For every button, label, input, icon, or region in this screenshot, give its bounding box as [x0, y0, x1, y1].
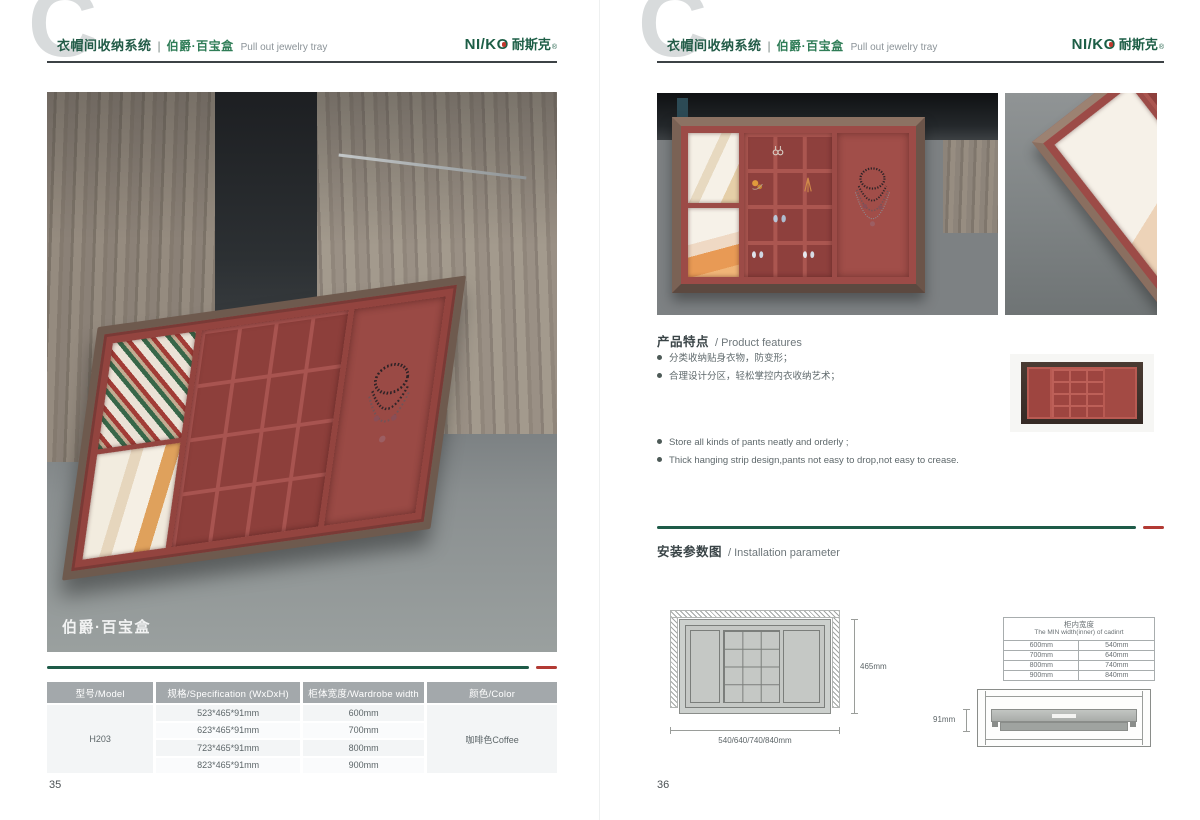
- cabinet-width-cell: 900mm: [1004, 670, 1079, 680]
- width-dimension-label: 540/640/740/840mm: [718, 736, 791, 745]
- inner-width-table-header: 柜内宽度 The MIN width(inner) of cadinrt: [1004, 618, 1155, 641]
- model-cell: H203: [47, 705, 153, 773]
- pendant-graphic: [748, 176, 766, 194]
- page-number: 35: [49, 779, 61, 791]
- right-compartment: [783, 630, 820, 703]
- left-compartment: [690, 630, 720, 703]
- product-name-cn: 伯爵·百宝盒: [167, 37, 234, 54]
- feature-text: 合理设计分区，轻松掌控内衣收纳艺术；: [669, 371, 840, 382]
- inner-width-cell: 540mm: [1079, 640, 1155, 650]
- registered-mark: ®: [1159, 44, 1164, 51]
- necklace-graphic: [841, 139, 904, 271]
- spec-cell: 623*465*91mm: [156, 723, 300, 739]
- feature-text: 分类收纳贴身衣物，防变形；: [669, 353, 793, 364]
- logo-cn-text: 耐斯克: [512, 34, 551, 53]
- cabinet-side-line: [985, 691, 986, 745]
- cabinet-side-line: [1142, 691, 1143, 745]
- feature-item: Store all kinds of pants neatly and orde…: [657, 437, 959, 448]
- table-title-en: The MIN width(inner) of cadinrt: [1004, 629, 1154, 637]
- tray-logo-label: [1052, 714, 1076, 718]
- mini-compartment-grid: [1052, 369, 1103, 417]
- dimension-tick: [839, 727, 840, 734]
- detail-photos: [657, 93, 1157, 315]
- product-name-en: Pull out jewelry tray: [241, 42, 328, 53]
- header-title: 衣帽间收纳系统 | 伯爵·百宝盒 Pull out jewelry tray: [667, 35, 937, 54]
- spec-table-header: 型号/Model: [47, 682, 153, 703]
- table-row: 600mm 540mm: [1004, 640, 1155, 650]
- scarf-cell: [1055, 93, 1157, 315]
- page-36: C 衣帽间收纳系统 | 伯爵·百宝盒 Pull out jewelry tray…: [600, 0, 1200, 820]
- width-cell: 800mm: [303, 740, 424, 756]
- spec-table-header: 柜体宽度/Wardrobe width: [303, 682, 424, 703]
- tray-profile: [991, 709, 1137, 722]
- feature-item: 合理设计分区，轻松掌控内衣收纳艺术；: [657, 371, 840, 382]
- installation-title-en: / Installation parameter: [728, 547, 840, 559]
- section-divider: [47, 666, 557, 669]
- inner-width-cell: 840mm: [1079, 670, 1155, 680]
- installation-title-cn: 安装参数图: [657, 541, 722, 560]
- tray-closeup-photo: [657, 93, 998, 315]
- spec-cell: 823*465*91mm: [156, 758, 300, 774]
- features-list-cn: 分类收纳贴身衣物，防变形； 合理设计分区，轻松掌控内衣收纳艺术；: [657, 353, 840, 383]
- product-render: [1010, 354, 1154, 432]
- page-number: 36: [657, 779, 669, 791]
- feature-text: Store all kinds of pants neatly and orde…: [669, 437, 849, 448]
- dimension-line: [966, 709, 967, 732]
- table-row: 700mm 640mm: [1004, 650, 1155, 660]
- header-rule: [47, 61, 557, 63]
- inner-width-cell: 640mm: [1079, 650, 1155, 660]
- cabinet-width-cell: 700mm: [1004, 650, 1079, 660]
- header-title: 衣帽间收纳系统 | 伯爵·百宝盒 Pull out jewelry tray: [57, 35, 327, 54]
- cabinet-width-cell: 800mm: [1004, 660, 1079, 670]
- product-name-en: Pull out jewelry tray: [851, 42, 938, 53]
- inner-width-cell: 740mm: [1079, 660, 1155, 670]
- necklace-compartment: [837, 133, 909, 276]
- features-list-en: Store all kinds of pants neatly and orde…: [657, 437, 959, 467]
- divider-red: [1143, 526, 1164, 529]
- dimension-tick: [851, 619, 858, 620]
- bullet-icon: [657, 373, 662, 378]
- jewelry-tray-top-view: [672, 117, 924, 292]
- logo-latin-text: NI/KO: [465, 36, 509, 53]
- tray-corner-photo: [1005, 93, 1157, 315]
- logo-cn-text: 耐斯克: [1119, 34, 1158, 53]
- scarf-column: [688, 133, 739, 276]
- top-view-drawing: 465mm 540/640/740/840mm: [670, 610, 840, 714]
- tassel-graphic: [800, 176, 816, 194]
- features-title-en: / Product features: [715, 337, 802, 349]
- bullet-icon: [657, 457, 662, 462]
- bullet-icon: [657, 439, 662, 444]
- dimension-line: [854, 619, 855, 714]
- wardrobe-photo: 伯爵·百宝盒: [47, 92, 557, 652]
- scarf-cell: [688, 133, 739, 202]
- scarf-cell: [98, 331, 196, 449]
- mini-right-compartment: [1105, 369, 1135, 417]
- page-header: C 衣帽间收纳系统 | 伯爵·百宝盒 Pull out jewelry tray…: [657, 0, 1164, 63]
- compartment-grid: [171, 310, 348, 547]
- dimension-tick: [670, 727, 671, 734]
- width-cell: 700mm: [303, 723, 424, 739]
- cabinet-width-cell: 600mm: [1004, 640, 1079, 650]
- spec-table-header: 颜色/Color: [427, 682, 557, 703]
- features-title-cn: 产品特点: [657, 331, 709, 350]
- section-divider: [657, 526, 1164, 529]
- logo-latin-text: NI/KO: [1072, 36, 1116, 53]
- depth-dimension-label: 465mm: [860, 662, 887, 671]
- category-title: 衣帽间收纳系统: [57, 35, 152, 54]
- bullet-icon: [657, 355, 662, 360]
- feature-item: 分类收纳贴身衣物，防变形；: [657, 353, 840, 364]
- title-separator: |: [158, 39, 161, 53]
- side-view-drawing: 91mm: [977, 689, 1151, 747]
- necklace-graphic: [330, 306, 438, 517]
- cabinet-top-line: [985, 696, 1143, 697]
- width-cell: 900mm: [303, 758, 424, 774]
- header-rule: [657, 61, 1164, 63]
- dimension-line: [670, 730, 840, 731]
- features-heading: 产品特点 / Product features: [657, 331, 802, 350]
- title-separator: |: [768, 39, 771, 53]
- nisko-logo: NI/KO 耐斯克 ®: [465, 34, 557, 53]
- registered-mark: ®: [552, 44, 557, 51]
- butterfly-graphic: [749, 248, 767, 262]
- compartment-grid: [723, 630, 780, 703]
- width-cell: 600mm: [303, 705, 424, 721]
- brooch-graphic: [770, 212, 790, 226]
- cabinet-wall-hatch: [670, 618, 678, 708]
- scarf-cell: [688, 208, 739, 277]
- jewelry-tray-corner: [1032, 93, 1157, 315]
- dimension-tick: [963, 709, 970, 710]
- table-row: 800mm 740mm: [1004, 660, 1155, 670]
- page-header: C 衣帽间收纳系统 | 伯爵·百宝盒 Pull out jewelry tray…: [47, 0, 557, 63]
- color-cell: 咖啡色Coffee: [427, 705, 557, 773]
- photo-caption: 伯爵·百宝盒: [62, 616, 151, 637]
- product-name-cn: 伯爵·百宝盒: [777, 37, 844, 54]
- spec-cell: 723*465*91mm: [156, 740, 300, 756]
- cabinet-wall-hatch: [832, 618, 840, 708]
- cabinet-bottom-line: [985, 739, 1143, 740]
- divider-green: [657, 526, 1136, 529]
- scarf-cell: [82, 442, 180, 560]
- earrings-graphic: [770, 142, 786, 158]
- butterfly-graphic: [800, 248, 818, 262]
- spec-table: 型号/Model 规格/Specification (WxDxH) 柜体宽度/W…: [47, 682, 557, 773]
- nisko-logo: NI/KO 耐斯克 ®: [1072, 34, 1164, 53]
- table-title-cn: 柜内宽度: [1004, 620, 1154, 629]
- mini-tray-inner: [1027, 367, 1137, 419]
- tray-rim: [685, 625, 825, 708]
- installation-heading: 安装参数图 / Installation parameter: [657, 541, 840, 560]
- tray-outline: [679, 619, 831, 714]
- divider-red: [536, 666, 557, 669]
- dimension-tick: [851, 713, 858, 714]
- wood-panel: [943, 140, 998, 233]
- tray-underside: [1000, 722, 1128, 731]
- cabinet-wall-hatch: [670, 610, 840, 618]
- mini-tray-frame: [1021, 362, 1143, 424]
- height-dimension-label: 91mm: [933, 715, 955, 724]
- inner-width-table: 柜内宽度 The MIN width(inner) of cadinrt 600…: [1003, 617, 1155, 681]
- table-row: 900mm 840mm: [1004, 670, 1155, 680]
- category-title: 衣帽间收纳系统: [667, 35, 762, 54]
- divider-green: [47, 666, 529, 669]
- feature-text: Thick hanging strip design,pants not eas…: [669, 455, 959, 466]
- spec-cell: 523*465*91mm: [156, 705, 300, 721]
- compartment-grid: [744, 133, 832, 276]
- page-35: C 衣帽间收纳系统 | 伯爵·百宝盒 Pull out jewelry tray…: [0, 0, 600, 820]
- dimension-tick: [963, 731, 970, 732]
- mini-left-compartment: [1029, 369, 1050, 417]
- feature-item: Thick hanging strip design,pants not eas…: [657, 455, 959, 466]
- catalog-spread: C 衣帽间收纳系统 | 伯爵·百宝盒 Pull out jewelry tray…: [0, 0, 1200, 820]
- spec-table-header: 规格/Specification (WxDxH): [156, 682, 300, 703]
